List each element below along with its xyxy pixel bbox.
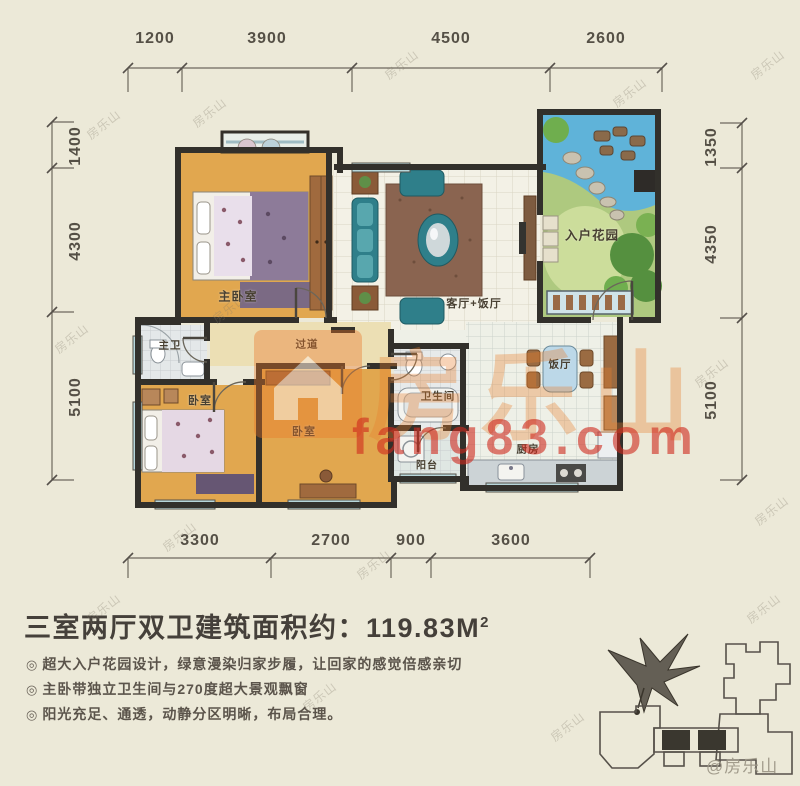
dim-left-1: 1400: [67, 126, 85, 166]
feature-item: ◎主卧带独立卫生间与270度超大景观飘窗: [26, 677, 462, 702]
label-living-dining: 客厅+饭厅: [446, 295, 501, 311]
feature-list: ◎超大入户花园设计，绿意漫染归家步履，让回家的感觉倍感亲切 ◎主卧带独立卫生间与…: [26, 652, 462, 727]
dim-left-3: 5100: [67, 377, 85, 417]
compass-icon: [608, 634, 700, 715]
dim-right-2: 4350: [703, 224, 721, 264]
bullet-icon: ◎: [26, 682, 38, 697]
dim-left-2: 4300: [67, 221, 85, 261]
label-master-bath: 主卫: [159, 338, 182, 353]
feature-item: ◎阳光充足、通透，动静分区明晰，布局合理。: [26, 702, 462, 727]
feature-text: 超大入户花园设计，绿意漫染归家步履，让回家的感觉倍感亲切: [42, 656, 462, 672]
title-text: 三室两厅双卫建筑面积约：119.83: [24, 613, 456, 643]
floorplan-title: 三室两厅双卫建筑面积约：119.83M2: [24, 606, 490, 645]
site-url-watermark: fang83.com: [352, 408, 700, 466]
label-master-bedroom: 主卧室: [218, 288, 257, 305]
dim-right-3: 5100: [703, 380, 721, 420]
label-bedroom-left: 卧室: [188, 392, 212, 408]
feature-item: ◎超大入户花园设计，绿意漫染归家步履，让回家的感觉倍感亲切: [26, 652, 462, 677]
bullet-icon: ◎: [26, 657, 38, 672]
label-entry-garden: 入户花园: [565, 225, 619, 244]
dim-bottom-2: 2700: [311, 532, 351, 550]
dim-bottom-1: 3300: [180, 532, 220, 550]
title-superscript: 2: [480, 614, 490, 631]
dim-top-3: 4500: [431, 30, 471, 48]
credit-watermark: @房乐山: [706, 752, 778, 777]
brand-logo-icon: [252, 328, 364, 440]
dim-bottom-4: 3600: [491, 532, 531, 550]
dim-top-1: 1200: [135, 30, 175, 48]
feature-text: 阳光充足、通透，动静分区明晰，布局合理。: [42, 706, 342, 722]
dim-top-2: 3900: [247, 30, 287, 48]
feature-text: 主卧带独立卫生间与270度超大景观飘窗: [42, 681, 308, 697]
dim-top-4: 2600: [586, 30, 626, 48]
dim-right-1: 1350: [703, 127, 721, 167]
floorplan-page: 1200 3900 4500 2600 1400 4300 5100 1350 …: [0, 0, 800, 786]
dim-bottom-3: 900: [396, 532, 426, 550]
title-unit: M: [456, 613, 480, 643]
bullet-icon: ◎: [26, 707, 38, 722]
